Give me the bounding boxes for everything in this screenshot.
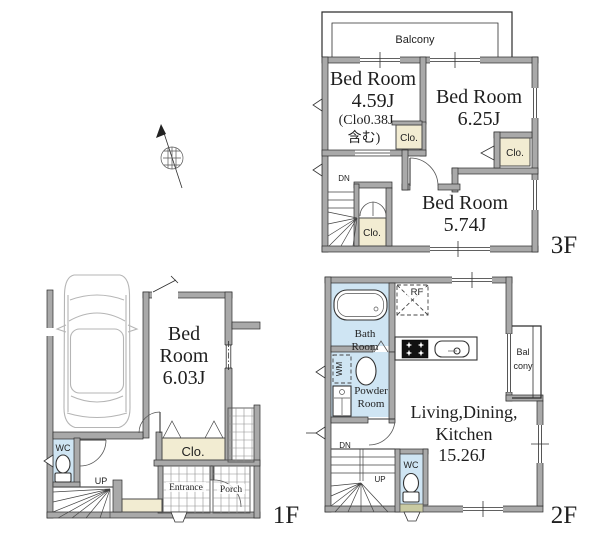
vent-icon <box>316 366 325 378</box>
floor-label-3f: 3F <box>551 232 577 259</box>
stairs-up-label-1f: UP <box>95 476 108 486</box>
wc-label-2f: WC <box>404 460 419 470</box>
floor-label-1f: 1F <box>273 502 299 529</box>
car <box>57 275 137 428</box>
folding-door-icon <box>481 146 494 160</box>
floor-label-2f: 2F <box>551 502 577 529</box>
bedroom2-name-3f: Bed Room <box>436 86 523 108</box>
porch-label: Porch <box>220 485 242 495</box>
ldk-name1: Living,Dining, <box>411 402 518 422</box>
entry-door-icon <box>171 512 187 522</box>
door-3f-hall <box>410 158 438 186</box>
kitchen-sink <box>435 341 469 357</box>
bath-label2: Room <box>352 341 379 353</box>
vanity-unit <box>333 386 351 416</box>
floorplan-canvas: Balcony Bed Room 4.59J (Clo0.38J 含む) Bed… <box>0 0 600 540</box>
ldk-name2: Kitchen <box>436 424 493 444</box>
vent-icon <box>313 99 322 111</box>
closet1-label-3f: Clo. <box>400 133 418 144</box>
floor-1f: Bed Room 6.03J Clo. WC UP Entrance Porch… <box>44 275 299 529</box>
closet2-label-3f: Clo. <box>506 148 524 159</box>
closet-label-1f: Clo. <box>181 444 204 459</box>
bedroom-name1-1f: Bed <box>168 323 200 345</box>
stove <box>402 340 428 358</box>
closet3-label-3f: Clo. <box>363 228 381 239</box>
bedroom-size-1f: 6.03J <box>163 367 206 389</box>
balcony-label2-2f: cony <box>513 361 533 371</box>
bedroom3-name-3f: Bed Room <box>422 192 509 214</box>
door-1f-bedroom <box>139 412 160 433</box>
powder-label1: Powder <box>354 385 388 397</box>
entrance-step <box>122 499 162 512</box>
bedroom1-note1-3f: (Clo0.38J <box>339 113 394 128</box>
stairs-up-label-2f: UP <box>374 475 385 484</box>
wm-label: WM <box>335 362 344 377</box>
balcony-label1-2f: Bal <box>516 347 529 357</box>
vent-icon <box>313 164 322 176</box>
basin-sink <box>356 357 376 385</box>
bedroom1-name-3f: Bed Room <box>330 68 417 90</box>
ldk-size: 15.26J <box>438 445 486 465</box>
bath-label1: Bath <box>355 328 376 340</box>
bedroom2-size-3f: 6.25J <box>458 108 501 130</box>
closet-doors-3f <box>360 202 386 216</box>
windows-2f <box>452 272 549 517</box>
toilet-2f <box>403 474 419 503</box>
wc-label-1f: WC <box>56 443 71 453</box>
balcony-label-3f: Balcony <box>395 34 435 46</box>
bedroom3-size-3f: 5.74J <box>444 214 487 236</box>
floor-3f: Balcony Bed Room 4.59J (Clo0.38J 含む) Bed… <box>313 12 577 259</box>
rf-label: RF <box>411 287 424 298</box>
stairs-dn-label-2f: DN <box>339 441 351 450</box>
stairs-3f <box>328 192 357 246</box>
wc-vent-icon-2f <box>404 512 420 521</box>
bedroom1-size-3f: 4.59J <box>352 90 395 112</box>
powder-label2: Room <box>358 398 385 410</box>
stairs-dn-label-3f: DN <box>338 174 350 183</box>
floor-2f: Bath Room Powder Room RF WM Living,Dinin… <box>306 272 577 529</box>
vent-icon <box>316 427 325 439</box>
entrance-label: Entrance <box>169 483 203 493</box>
wc-window-sill-2f <box>400 504 423 512</box>
bedroom1-note2-3f: 含む) <box>348 130 381 146</box>
bedroom-name2-1f: Room <box>160 345 209 367</box>
north-compass-icon <box>156 124 183 188</box>
closet-bifold-doors-1f <box>163 421 223 438</box>
toilet-1f <box>55 455 71 482</box>
bathtub <box>334 290 387 320</box>
door-1f-wc <box>80 440 106 466</box>
